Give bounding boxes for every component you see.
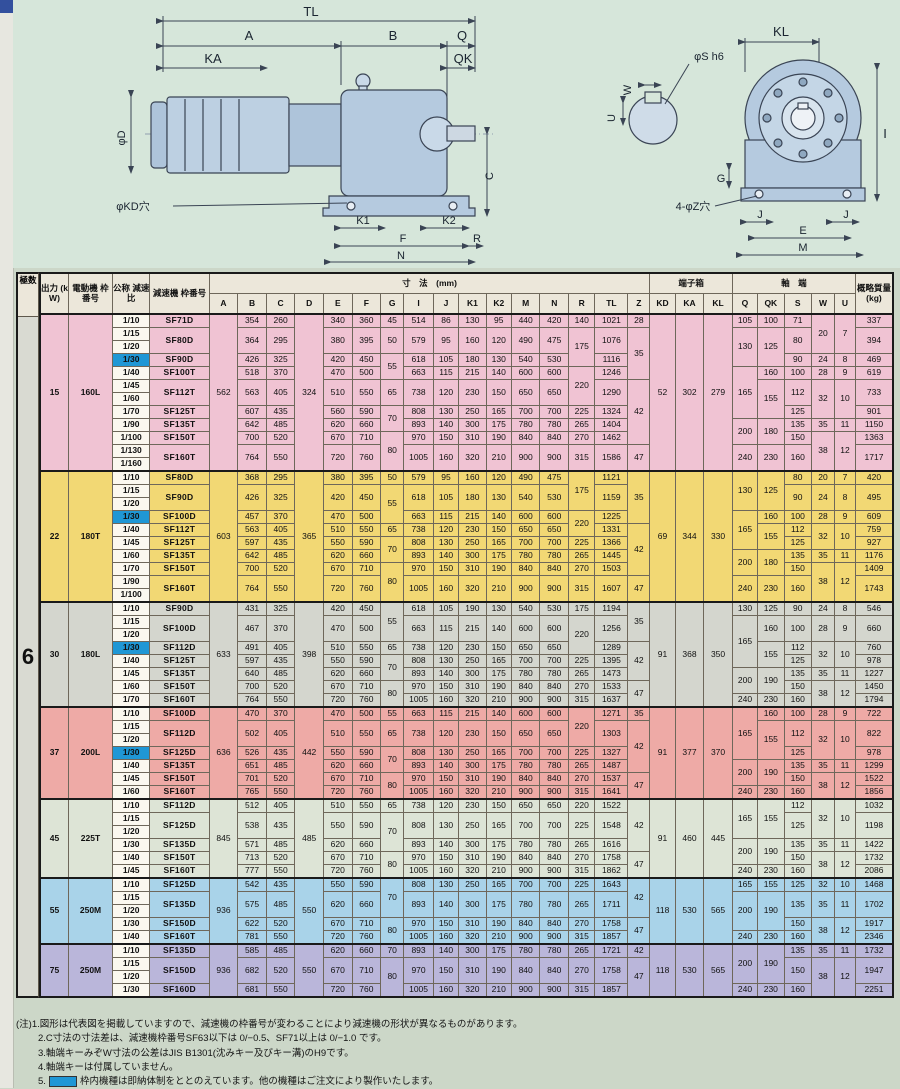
- dim-cell: 9: [835, 511, 856, 524]
- dim-cell: 8: [835, 485, 856, 511]
- dim-cell: 320: [459, 865, 486, 879]
- dim-cell: 91: [650, 799, 675, 878]
- dim-cell: 514: [404, 314, 434, 328]
- dim-cell: 320: [459, 694, 486, 708]
- dim-cell: 467: [238, 616, 267, 642]
- dim-cell: 500: [352, 367, 381, 380]
- dim-cell: 35: [628, 328, 650, 380]
- dim-cell: 155: [758, 642, 784, 668]
- dim-cell: 310: [459, 918, 486, 931]
- ratio-cell: 1/15: [112, 958, 149, 971]
- dim-cell: 720: [323, 694, 352, 708]
- ratio-cell-highlighted: 1/30: [112, 747, 149, 760]
- dim-cell: 370: [266, 707, 295, 721]
- dim-cell: 380: [323, 471, 352, 485]
- dim-cell: 1857: [595, 931, 628, 945]
- dim-cell: 936: [209, 944, 238, 997]
- dim-cell: 550: [352, 721, 381, 747]
- dim-cell: 32: [811, 642, 834, 668]
- dim-cell: 140: [569, 314, 595, 328]
- dim-cell: 700: [511, 813, 540, 839]
- dim-cell: 100: [784, 616, 811, 642]
- dim-cell: 265: [569, 668, 595, 681]
- dim-cell: 28: [811, 511, 834, 524]
- dim-cell: 565: [704, 944, 733, 997]
- dim-cell: 840: [511, 563, 540, 576]
- dim-cell: 320: [459, 931, 486, 945]
- ratio-cell: 1/70: [112, 406, 149, 419]
- frame-cell: SF135D: [150, 944, 209, 958]
- dim-cell: 35: [628, 602, 650, 642]
- dim-cell: 47: [628, 773, 650, 800]
- dim-cell: 240: [732, 984, 757, 998]
- dim-cell: 120: [433, 524, 458, 537]
- frame-cell: SF135D: [150, 892, 209, 918]
- footnote-3: 3.軸端キーみぞW寸法の公差はJIS B1301(沈みキー及びキー溝)のH9です…: [16, 1047, 892, 1060]
- dim-cell: 442: [295, 707, 324, 799]
- dim-cell: 738: [404, 799, 434, 813]
- dim-cell: 265: [569, 419, 595, 432]
- frame-cell: SF160T: [150, 786, 209, 800]
- dim-cell: 978: [855, 747, 893, 760]
- dim-cell: 780: [511, 839, 540, 852]
- dim-cell: 180: [758, 550, 784, 576]
- frame-cell: SF90D: [150, 602, 209, 616]
- dim-cell: 538: [238, 813, 267, 839]
- dim-cell: 160: [784, 694, 811, 708]
- dim-cell: 450: [352, 354, 381, 367]
- dim-cell: 550: [295, 878, 324, 944]
- dim-cell: 315: [569, 786, 595, 800]
- ratio-cell: 1/10: [112, 944, 149, 958]
- dim-cell: 300: [459, 419, 486, 432]
- dim-cell: 780: [540, 892, 569, 918]
- dim-cell: 840: [540, 852, 569, 865]
- ratio-cell: 1/20: [112, 734, 149, 747]
- frame-cell: SF125D: [150, 878, 209, 892]
- dim-cell: 160: [433, 694, 458, 708]
- dim-cell: 1862: [595, 865, 628, 879]
- dim-cell: 1256: [595, 616, 628, 642]
- power-cell: 15: [40, 314, 69, 471]
- dim-cell: 210: [486, 865, 511, 879]
- dim-cell: 530: [675, 944, 704, 997]
- dim-cell: 250: [459, 747, 486, 760]
- dim-cell: 927: [855, 537, 893, 550]
- dim-cell: 840: [540, 773, 569, 786]
- dim-cell: 590: [352, 813, 381, 839]
- dim-cell: 125: [784, 406, 811, 419]
- frame-cell: SF112D: [150, 642, 209, 655]
- dim-cell: 490: [511, 328, 540, 354]
- dim-cell: 650: [540, 799, 569, 813]
- dim-cell: 1121: [595, 471, 628, 485]
- poles-header: 極数: [18, 274, 38, 317]
- dim-cell: 590: [352, 537, 381, 550]
- dim-cell: 165: [486, 813, 511, 839]
- dim-cell: 140: [433, 419, 458, 432]
- dim-cell: 510: [323, 642, 352, 655]
- dim-cell: 1487: [595, 760, 628, 773]
- dim-cell: 893: [404, 892, 434, 918]
- dim-cell: 633: [209, 602, 238, 707]
- dim-cell: 130: [433, 747, 458, 760]
- column-header: I: [404, 294, 434, 315]
- dim-cell: 518: [238, 367, 267, 380]
- dim-cell: 165: [732, 616, 757, 668]
- dim-cell: 710: [352, 852, 381, 865]
- dim-label-b: B: [389, 28, 398, 43]
- dim-cell: 700: [511, 406, 540, 419]
- dim-cell: 300: [459, 944, 486, 958]
- dim-cell: 562: [209, 314, 238, 471]
- dim-cell: 405: [266, 642, 295, 655]
- dim-cell: 650: [540, 524, 569, 537]
- dim-cell: 160: [433, 445, 458, 472]
- dim-cell: 650: [540, 380, 569, 406]
- dim-cell: 175: [486, 892, 511, 918]
- dim-label-z4: 4-φZ穴: [676, 199, 711, 213]
- dim-cell: 12: [835, 773, 856, 800]
- dim-cell: 47: [628, 958, 650, 998]
- dim-label-j2: J: [843, 209, 849, 221]
- dim-cell: 840: [540, 918, 569, 931]
- dim-cell: 70: [381, 878, 404, 918]
- dim-label-ka: KA: [204, 51, 222, 66]
- dim-cell: 485: [266, 419, 295, 432]
- dim-cell: 130: [433, 406, 458, 419]
- dim-cell: 900: [540, 445, 569, 472]
- dim-cell: 470: [238, 707, 267, 721]
- dim-cell: 650: [540, 721, 569, 747]
- dim-cell: 35: [811, 668, 834, 681]
- dim-cell: 10: [835, 799, 856, 839]
- dim-cell: 1150: [855, 419, 893, 432]
- dim-cell: 140: [433, 839, 458, 852]
- dim-cell: 1076: [595, 328, 628, 354]
- dim-cell: 435: [266, 655, 295, 668]
- dim-cell: 175: [486, 668, 511, 681]
- ratio-cell: 1/30: [112, 984, 149, 998]
- dim-cell: 1522: [855, 773, 893, 786]
- dim-cell: 590: [352, 655, 381, 668]
- dim-cell: 845: [209, 799, 238, 878]
- dim-cell: 450: [352, 485, 381, 511]
- dim-cell: 11: [835, 892, 856, 918]
- dim-cell: 112: [784, 642, 811, 655]
- motor-cell: 160L: [69, 314, 113, 471]
- frame-cell: SF135T: [150, 419, 209, 432]
- column-header: Z: [628, 294, 650, 315]
- dim-cell: 900: [540, 984, 569, 998]
- column-header: B: [238, 294, 267, 315]
- dim-cell: 91: [650, 707, 675, 799]
- dim-cell: 130: [486, 354, 511, 367]
- dim-cell: 760: [352, 694, 381, 708]
- dim-cell: 780: [540, 668, 569, 681]
- dim-cell: 420: [323, 602, 352, 616]
- poles-column: 極数 6: [16, 272, 39, 998]
- dim-cell: 80: [381, 563, 404, 603]
- dim-cell: 340: [323, 314, 352, 328]
- dim-cell: 165: [732, 799, 757, 839]
- dim-cell: 140: [486, 616, 511, 642]
- dim-cell: 120: [486, 471, 511, 485]
- frame-cell: SF125D: [150, 747, 209, 760]
- dim-cell: 1005: [404, 445, 434, 472]
- dim-cell: 9: [835, 367, 856, 380]
- dim-cell: 270: [569, 918, 595, 931]
- dim-cell: 28: [628, 314, 650, 328]
- motor-cell: 250M: [69, 878, 113, 944]
- dim-cell: 781: [238, 931, 267, 945]
- frame-cell: SF160T: [150, 865, 209, 879]
- dim-label-q: Q: [457, 28, 467, 43]
- dim-cell: 1743: [855, 576, 893, 603]
- column-header: KL: [704, 294, 733, 315]
- dim-cell: 225: [569, 655, 595, 668]
- dim-cell: 550: [352, 524, 381, 537]
- dim-cell: 720: [323, 931, 352, 945]
- dim-cell: 155: [758, 878, 784, 892]
- dim-cell: 1227: [855, 668, 893, 681]
- dim-cell: 822: [855, 721, 893, 747]
- dim-cell: 225: [569, 537, 595, 550]
- dim-cell: 90: [784, 354, 811, 367]
- dim-cell: 160: [459, 328, 486, 354]
- dim-cell: 682: [238, 958, 267, 984]
- dim-cell: 175: [486, 944, 511, 958]
- dim-cell: 135: [784, 892, 811, 918]
- dim-cell: 590: [352, 878, 381, 892]
- dim-cell: 900: [511, 931, 540, 945]
- dim-cell: 550: [266, 445, 295, 472]
- dim-cell: 100: [784, 367, 811, 380]
- dim-cell: 893: [404, 668, 434, 681]
- dim-cell: 69: [650, 471, 675, 602]
- dim-cell: 1246: [595, 367, 628, 380]
- dim-cell: 70: [381, 813, 404, 852]
- dim-cell: 520: [266, 958, 295, 984]
- dim-cell: 893: [404, 760, 434, 773]
- ratio-cell-highlighted: 1/30: [112, 354, 149, 367]
- dim-cell: 125: [784, 813, 811, 839]
- dim-cell: 550: [323, 747, 352, 760]
- dim-cell: 1299: [855, 760, 893, 773]
- dim-cell: 118: [650, 878, 675, 944]
- dim-cell: 1537: [595, 773, 628, 786]
- ratio-cell: 1/45: [112, 773, 149, 786]
- dim-cell: 155: [758, 799, 784, 839]
- dim-cell: 344: [675, 471, 704, 602]
- dim-cell: 435: [266, 537, 295, 550]
- frame-cell: SF160T: [150, 576, 209, 603]
- dim-cell: 1758: [595, 958, 628, 984]
- dim-cell: 970: [404, 773, 434, 786]
- ratio-cell: 1/70: [112, 563, 149, 576]
- dim-cell: 42: [628, 944, 650, 958]
- dim-cell: 700: [238, 681, 267, 694]
- dim-cell: 470: [323, 707, 352, 721]
- dim-cell: 1473: [595, 668, 628, 681]
- dim-cell: 670: [323, 918, 352, 931]
- dim-cell: 550: [352, 642, 381, 655]
- dim-cell: 893: [404, 419, 434, 432]
- dim-cell: 808: [404, 537, 434, 550]
- dim-cell: 936: [209, 878, 238, 944]
- dim-cell: 550: [352, 380, 381, 406]
- power-cell: 45: [40, 799, 69, 878]
- dim-cell: 270: [569, 958, 595, 984]
- dim-cell: 600: [511, 367, 540, 380]
- frame-cell: SF160D: [150, 984, 209, 998]
- column-header: J: [433, 294, 458, 315]
- ratio-cell: 1/20: [112, 826, 149, 839]
- dim-cell: 1422: [855, 839, 893, 852]
- frame-cell: SF80D: [150, 328, 209, 354]
- dim-cell: 315: [569, 931, 595, 945]
- dim-cell: 210: [486, 445, 511, 472]
- ratio-cell: 1/45: [112, 537, 149, 550]
- ratio-cell: 1/20: [112, 341, 149, 354]
- ratio-cell: 1/60: [112, 393, 149, 406]
- motor-cell: 200L: [69, 707, 113, 799]
- dim-cell: 315: [569, 865, 595, 879]
- ratio-cell: 1/10: [112, 799, 149, 813]
- dim-cell: 1794: [855, 694, 893, 708]
- column-header: QK: [758, 294, 784, 315]
- dim-cell: 324: [295, 314, 324, 471]
- dim-cell: 140: [433, 668, 458, 681]
- dim-cell: 2086: [855, 865, 893, 879]
- dim-cell: 150: [784, 852, 811, 865]
- dim-cell: 670: [323, 958, 352, 984]
- dim-cell: 2251: [855, 984, 893, 998]
- dim-cell: 560: [323, 406, 352, 419]
- dim-cell: 150: [433, 918, 458, 931]
- dim-cell: 47: [628, 918, 650, 945]
- column-header: E: [323, 294, 352, 315]
- dim-cell: 1702: [855, 892, 893, 918]
- dim-cell: 80: [381, 958, 404, 998]
- dim-cell: 250: [459, 537, 486, 550]
- dim-cell: 65: [381, 524, 404, 537]
- dim-cell: 47: [628, 852, 650, 879]
- dim-label-kl: KL: [773, 24, 789, 39]
- dim-cell: 130: [732, 328, 757, 367]
- dim-cell: 460: [675, 799, 704, 878]
- dim-cell: 1005: [404, 576, 434, 603]
- dim-cell: 80: [784, 328, 811, 354]
- dim-cell: 550: [323, 878, 352, 892]
- footnote-5: 5.枠内機種は即納体制をととのえています。他の機種はご注文により製作いたします。: [16, 1075, 892, 1088]
- dim-cell: 1548: [595, 813, 628, 839]
- column-header: TL: [595, 294, 628, 315]
- dim-cell: 220: [569, 799, 595, 813]
- dim-cell: 220: [569, 367, 595, 406]
- dim-cell: 1005: [404, 931, 434, 945]
- dim-cell: 8: [835, 602, 856, 616]
- dim-cell: 650: [511, 799, 540, 813]
- dim-cell: 135: [784, 419, 811, 432]
- dim-cell: 440: [511, 314, 540, 328]
- dim-cell: 24: [811, 602, 834, 616]
- poles-value: 6: [18, 317, 38, 996]
- dim-cell: 160: [784, 931, 811, 945]
- dim-cell: 55: [381, 707, 404, 721]
- dim-cell: 760: [352, 984, 381, 998]
- ratio-cell: 1/90: [112, 576, 149, 589]
- dim-cell: 12: [835, 918, 856, 945]
- dim-cell: 470: [323, 511, 352, 524]
- frame-cell: SF100D: [150, 511, 209, 524]
- footnote-1: (注)1.図形は代表図を掲載していますので、減速機の枠番号が変わることにより減速…: [16, 1018, 892, 1031]
- frame-cell: SF100D: [150, 616, 209, 642]
- dim-cell: 175: [486, 550, 511, 563]
- dim-cell: 175: [569, 471, 595, 511]
- dim-cell: 808: [404, 878, 434, 892]
- dim-cell: 681: [238, 984, 267, 998]
- dim-cell: 733: [855, 380, 893, 406]
- dim-cell: 140: [486, 707, 511, 721]
- ratio-cell: 1/45: [112, 380, 149, 393]
- dim-cell: 530: [540, 485, 569, 511]
- ratio-cell: 1/10: [112, 878, 149, 892]
- dim-cell: 530: [540, 354, 569, 367]
- dim-cell: 240: [732, 576, 757, 603]
- dim-cell: 502: [238, 721, 267, 747]
- dim-cell: 760: [352, 786, 381, 800]
- dim-cell: 240: [732, 931, 757, 945]
- dim-cell: 700: [511, 747, 540, 760]
- dim-cell: 70: [381, 655, 404, 681]
- dim-cell: 660: [352, 944, 381, 958]
- dim-label-m: M: [798, 242, 807, 254]
- dim-cell: 1005: [404, 694, 434, 708]
- dim-cell: 738: [404, 380, 434, 406]
- frame-cell: SF160T: [150, 445, 209, 472]
- dim-cell: 1643: [595, 878, 628, 892]
- dim-cell: 35: [811, 839, 834, 852]
- dim-cell: 155: [758, 380, 784, 419]
- dim-cell: 1503: [595, 563, 628, 576]
- column-header: R: [569, 294, 595, 315]
- dim-label-phiD: φD: [116, 130, 128, 145]
- dim-cell: 190: [486, 958, 511, 984]
- dim-cell: 100: [784, 707, 811, 721]
- dim-cell: 190: [486, 681, 511, 694]
- dim-cell: 1331: [595, 524, 628, 537]
- column-header: D: [295, 294, 324, 315]
- dimensions-table-area: 極数 6 出力 (kW)電動機 枠番号公称 減速比減速機 枠番号寸 法 (mm)…: [16, 272, 894, 998]
- dim-cell: 315: [569, 445, 595, 472]
- column-header: 概略質量(kg): [855, 273, 893, 314]
- column-header: 公称 減速比: [112, 273, 149, 314]
- dim-cell: 165: [486, 406, 511, 419]
- dim-cell: 469: [855, 354, 893, 367]
- dim-cell: 1271: [595, 707, 628, 721]
- dim-cell: 250: [459, 655, 486, 668]
- dim-cell: 597: [238, 655, 267, 668]
- dim-cell: 80: [381, 432, 404, 472]
- dim-cell: 315: [569, 576, 595, 603]
- dim-cell: 663: [404, 707, 434, 721]
- frame-cell: SF135T: [150, 550, 209, 563]
- dim-cell: 738: [404, 721, 434, 747]
- dim-cell: 160: [758, 511, 784, 524]
- dim-cell: 670: [323, 852, 352, 865]
- ratio-cell: 1/10: [112, 471, 149, 485]
